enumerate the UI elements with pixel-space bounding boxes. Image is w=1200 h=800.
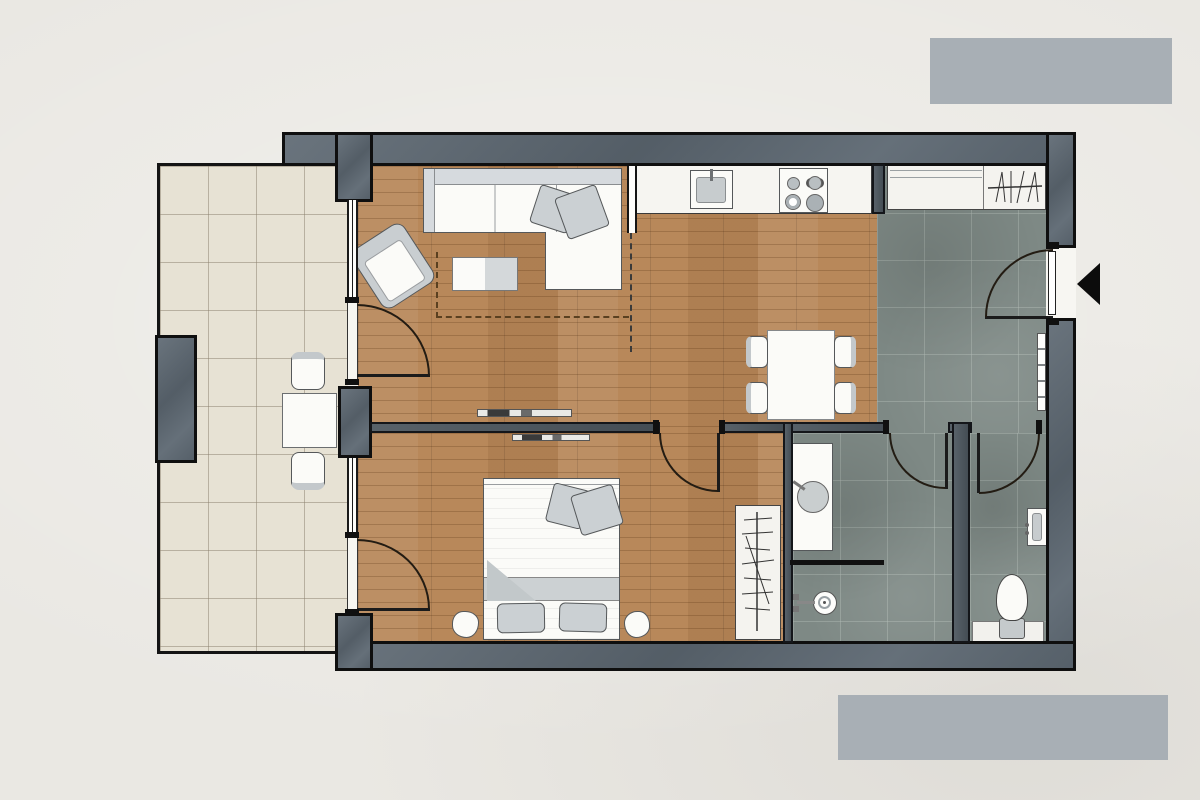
wall-east-lower: [1046, 318, 1076, 671]
shower-arm-icon: [797, 601, 815, 604]
door-jamb: [1046, 242, 1059, 249]
wardrobe-divider: [983, 165, 984, 209]
dining-chair: [834, 382, 856, 414]
sofa-chaise: [545, 232, 622, 290]
dining-chair: [746, 336, 768, 368]
toilet-icon: [996, 574, 1028, 621]
door-jamb: [1036, 420, 1042, 434]
dining-chair: [834, 336, 856, 368]
bedside-pouf-right: [624, 611, 650, 638]
wall-bedroom-bathroom: [783, 422, 793, 643]
bathroom-vanity: [793, 443, 833, 551]
washbasin-bowl: [1032, 513, 1042, 541]
sink-faucet-icon: [710, 169, 713, 181]
dining-chair: [746, 382, 768, 414]
burner-icon: [806, 194, 824, 212]
bathroom-door-leaf: [945, 433, 948, 489]
kitchen-zone-divider: [630, 233, 632, 352]
balcony-chair-south: [291, 452, 325, 490]
door-jamb: [345, 532, 359, 538]
bedroom-window: [347, 458, 358, 538]
bedroom-wardrobe: [735, 505, 781, 640]
shower-half-wall: [790, 560, 884, 565]
bedside-pouf-left: [452, 611, 479, 638]
wc-washbasin: [1027, 508, 1046, 546]
sofa-armrest: [424, 169, 435, 232]
door-jamb: [345, 297, 359, 303]
balcony-pier-mid: [338, 386, 372, 458]
logo-placeholder-top: [930, 38, 1172, 104]
bedroom-wall-console: [512, 434, 590, 441]
shower-drain-icon: [813, 591, 837, 615]
wall-bathroom-wc: [952, 422, 970, 643]
entrance-arrow-icon: [1077, 263, 1100, 305]
wall-south-step: [335, 613, 373, 671]
living-window: [347, 200, 358, 303]
wall-north: [282, 132, 1076, 166]
toilet-cistern: [999, 618, 1025, 639]
wall-kitchen-hall-stub: [872, 164, 885, 214]
burner-icon: [785, 194, 801, 210]
kitchen-counter: [636, 166, 872, 214]
door-jamb: [345, 609, 359, 615]
logo-placeholder-bottom: [838, 695, 1168, 760]
door-jamb: [883, 420, 889, 434]
kitchen-end-panel: [627, 166, 637, 233]
balcony-chair-north: [291, 352, 325, 390]
wall-living-bedroom: [370, 422, 660, 433]
hall-wardrobe: [887, 164, 1046, 210]
sofa-back: [424, 169, 621, 185]
hanging-rail-icon: [986, 166, 1044, 208]
wall-hall-bathroom: [785, 422, 887, 433]
door-jamb: [653, 420, 659, 434]
kitchen-cooktop: [779, 168, 828, 213]
washbasin-tap-icon: [1025, 523, 1029, 527]
burner-icon: [808, 176, 822, 190]
door-jamb: [1046, 318, 1059, 325]
hall-radiator: [1037, 333, 1046, 411]
coffee-table: [452, 257, 518, 291]
hanging-rail-icon: [736, 506, 779, 637]
wall-north-step: [335, 132, 373, 202]
dining-table: [767, 330, 835, 420]
floor-plan: [0, 0, 1200, 800]
burner-icon: [787, 177, 800, 190]
shower-valve-icon: [792, 594, 799, 600]
door-jamb: [719, 420, 725, 434]
door-jamb: [345, 379, 359, 385]
wardrobe-shelf: [890, 170, 982, 178]
wall-east-upper: [1046, 132, 1076, 248]
shower-valve-icon: [792, 606, 799, 612]
kitchen-sink: [690, 170, 733, 209]
balcony-table: [282, 393, 337, 448]
wall-south: [335, 641, 1076, 671]
shower-dot: [823, 601, 826, 604]
pillow-left: [497, 603, 546, 634]
balcony-pier-west: [155, 335, 197, 463]
washbasin-tap-icon: [1025, 531, 1029, 535]
living-wall-console: [477, 409, 572, 417]
bed-headline: [484, 484, 619, 485]
wall-living-bedroom-b: [722, 422, 785, 433]
pillow-right: [559, 602, 608, 632]
